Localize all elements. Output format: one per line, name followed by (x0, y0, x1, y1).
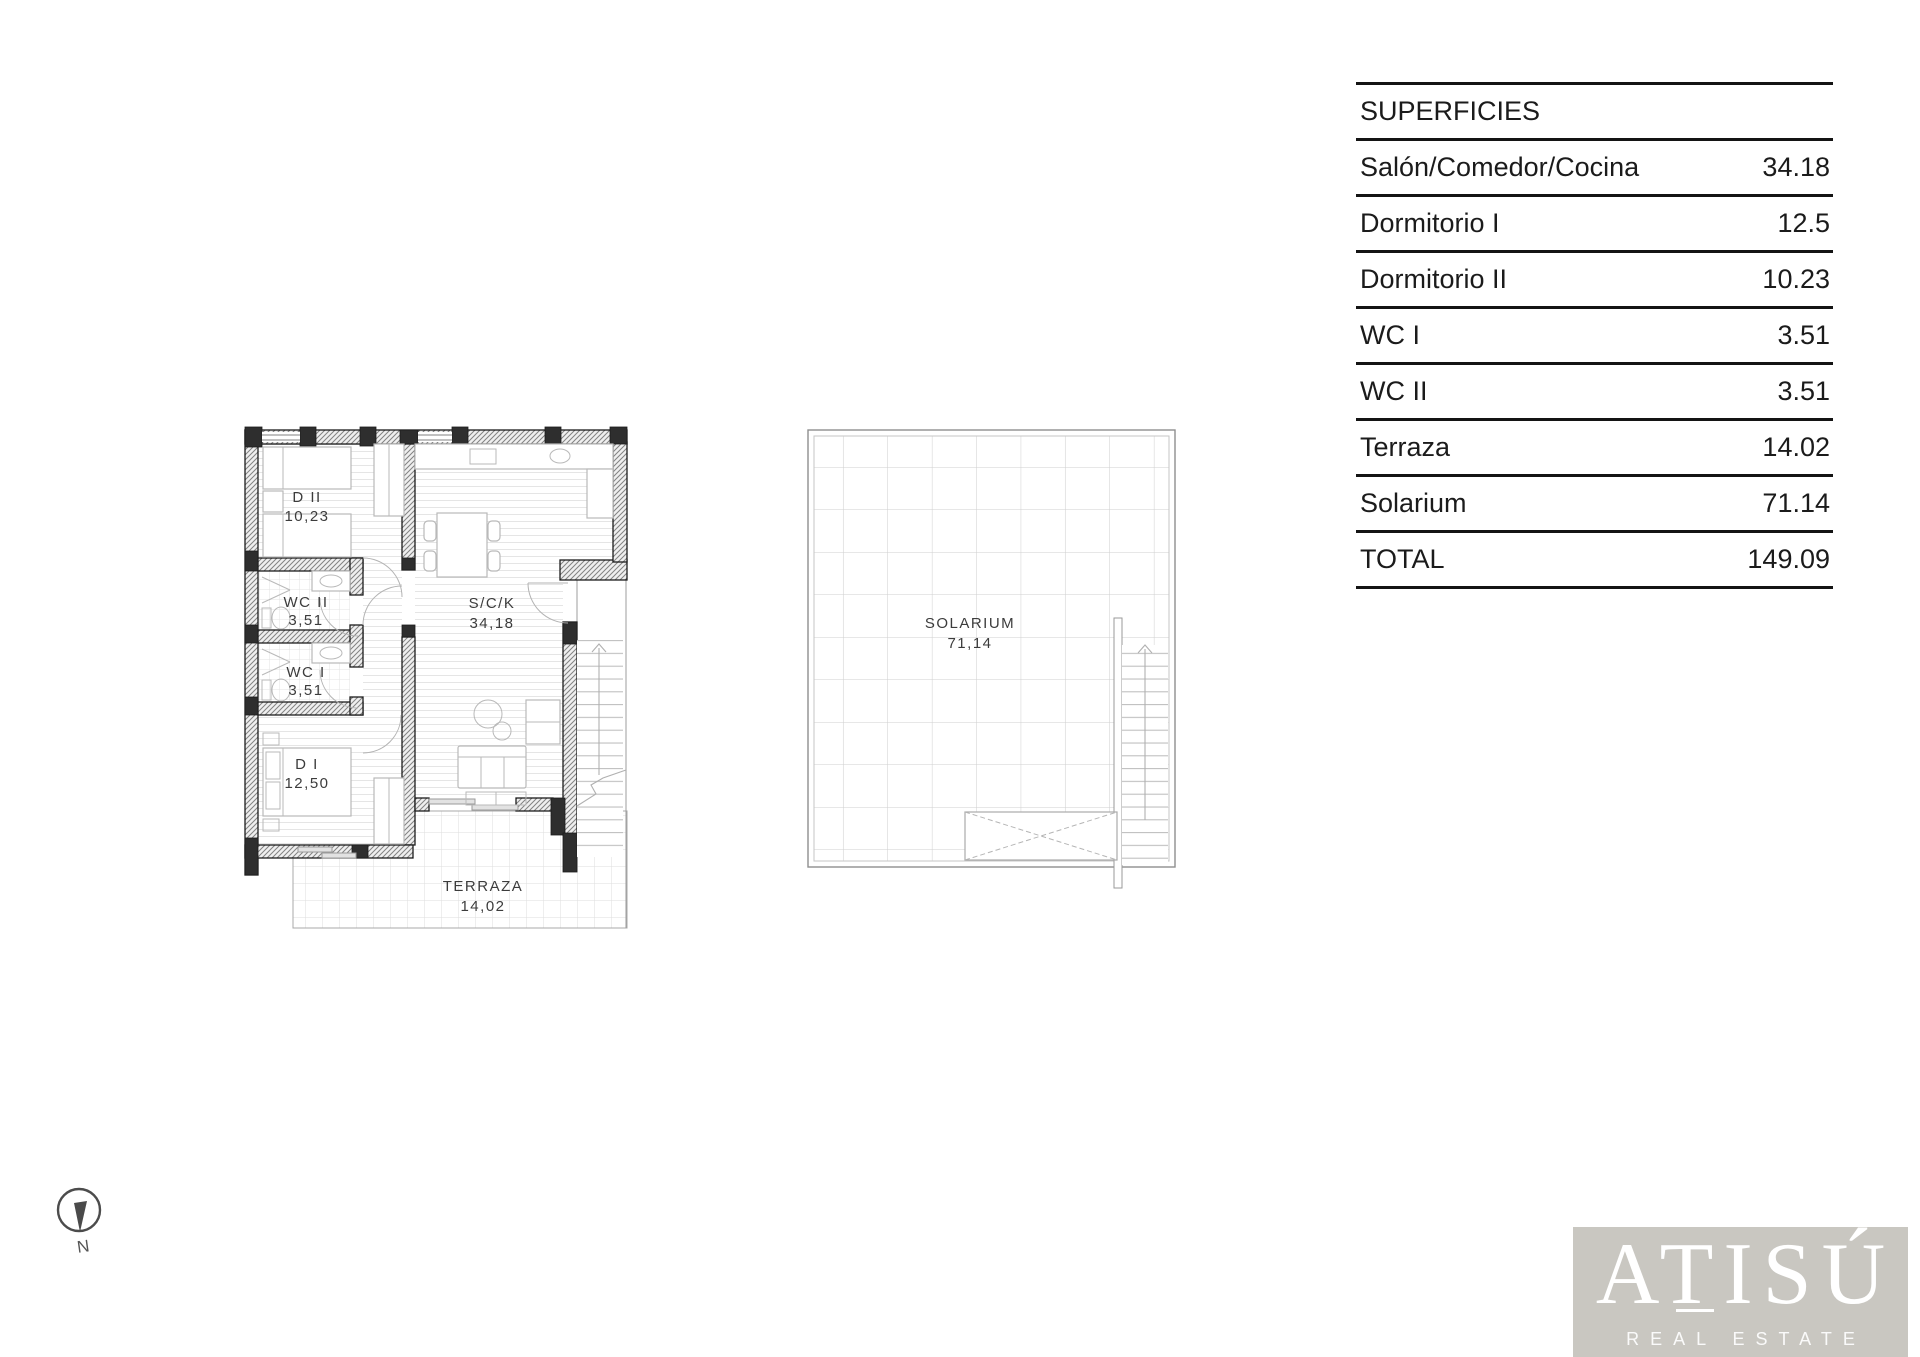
row-label: Dormitorio II (1356, 266, 1507, 293)
table-row: Salón/Comedor/Cocina 34.18 (1356, 138, 1833, 194)
table-title: SUPERFICIES (1356, 98, 1540, 125)
row-label: Solarium (1356, 490, 1467, 517)
north-label: N (76, 1236, 91, 1257)
hall-floor (363, 558, 402, 715)
table-row: TOTAL 149.09 (1356, 530, 1833, 586)
row-value: 10.23 (1762, 266, 1833, 293)
row-value: 14.02 (1762, 434, 1833, 461)
solarium-staircase (1114, 618, 1168, 888)
room-area-di: 12,50 (284, 775, 329, 792)
row-label: WC II (1356, 378, 1428, 405)
brand-tagline: REAL ESTATE (1573, 1329, 1908, 1350)
logo-box: ATISÚ REAL ESTATE (1573, 1227, 1908, 1357)
row-value: 12.5 (1777, 210, 1833, 237)
row-label: Terraza (1356, 434, 1450, 461)
room-label-wcii: WC II (284, 594, 329, 611)
table-row: WC I 3.51 (1356, 306, 1833, 362)
row-label: Salón/Comedor/Cocina (1356, 154, 1639, 181)
exterior-staircase (577, 640, 626, 857)
row-value: 34.18 (1762, 154, 1833, 181)
room-label-solarium: SOLARIUM (925, 615, 1015, 632)
solarium-opening (965, 812, 1117, 860)
surfaces-table-rows: Salón/Comedor/Cocina 34.18 Dormitorio I … (1356, 138, 1833, 586)
room-area-solarium: 71,14 (947, 635, 992, 652)
room-area-wcii: 3,51 (288, 612, 323, 629)
row-label: TOTAL (1356, 546, 1445, 573)
surfaces-table: SUPERFICIES Salón/Comedor/Cocina 34.18 D… (1356, 82, 1833, 589)
room-label-di: D I (295, 756, 319, 773)
apartment-floor-plan: D II 10,23 WC II 3,51 WC I 3,51 D I 12,5… (245, 427, 627, 928)
room-area-terraza: 14,02 (460, 898, 505, 915)
table-row: Dormitorio I 12.5 (1356, 194, 1833, 250)
brand-name: ATISÚ (1573, 1229, 1908, 1321)
row-label: Dormitorio I (1356, 210, 1500, 237)
room-label-terraza: TERRAZA (443, 878, 524, 895)
compass-needle-icon (74, 1201, 87, 1232)
brand-t-underline (1676, 1309, 1714, 1312)
room-label-sck: S/C/K (469, 595, 516, 612)
table-row: WC II 3.51 (1356, 362, 1833, 418)
table-row: Terraza 14.02 (1356, 418, 1833, 474)
row-label: WC I (1356, 322, 1420, 349)
room-area-wci: 3,51 (288, 682, 323, 699)
table-row: Dormitorio II 10.23 (1356, 250, 1833, 306)
row-value: 3.51 (1777, 378, 1833, 405)
row-value: 71.14 (1762, 490, 1833, 517)
room-area-sck: 34,18 (469, 615, 514, 632)
row-value: 3.51 (1777, 322, 1833, 349)
solarium-floor-plan: SOLARIUM 71,14 (808, 430, 1175, 888)
compass: N (58, 1189, 100, 1257)
sliding-window (298, 847, 332, 852)
table-row: Solarium 71.14 (1356, 474, 1833, 530)
surfaces-table-header: SUPERFICIES (1356, 82, 1833, 138)
row-value: 149.09 (1747, 546, 1833, 573)
room-label-dii: D II (292, 489, 321, 506)
room-area-dii: 10,23 (284, 508, 329, 525)
room-label-wci: WC I (286, 664, 325, 681)
terrace-sliding-door (429, 799, 475, 804)
plan-sheet: D II 10,23 WC II 3,51 WC I 3,51 D I 12,5… (0, 0, 1920, 1357)
